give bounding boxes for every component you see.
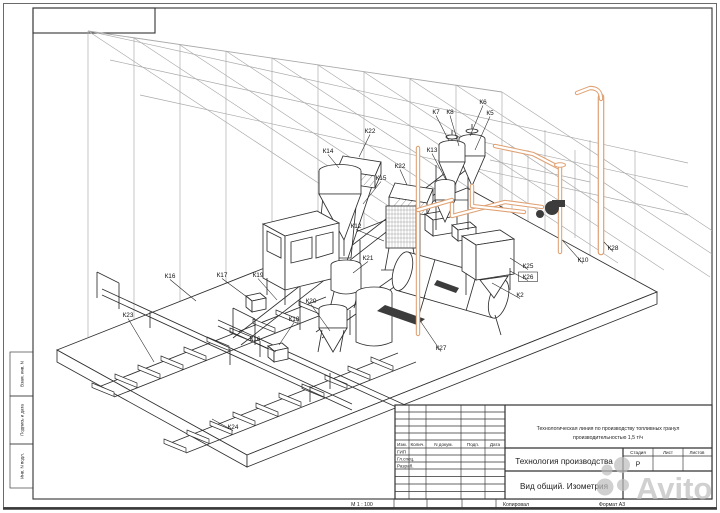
- equipment-label: К18: [289, 316, 300, 323]
- equipment-label: К12: [351, 223, 362, 230]
- role-razrab: Разраб.: [397, 464, 414, 469]
- role-glspec: Гл.спец.: [397, 457, 414, 462]
- label-leader: [359, 135, 370, 158]
- label-leader: [400, 170, 407, 186]
- side-cell-podpis: Подпись и дата: [20, 404, 25, 436]
- avito-logo-dot: [614, 457, 630, 473]
- equipment-label: К17: [217, 272, 228, 279]
- stage-col: Стадия: [630, 450, 646, 455]
- scale-note: М 1 : 100: [351, 502, 373, 508]
- bottom-margin: М 1 : 100 Копировал Формат А3: [351, 499, 625, 508]
- sheet-col: Лист: [663, 450, 674, 455]
- equipment-label: К13: [427, 147, 438, 154]
- project-description-line2: производительностью 1,5 т/ч: [573, 435, 643, 441]
- doc-title: Технология производства: [515, 457, 613, 466]
- drive-box-k17: [246, 293, 266, 312]
- equipment-label: К7: [432, 109, 440, 116]
- equipment-label: К14: [323, 148, 334, 155]
- project-description-line1: Технологическая линия по производству то…: [537, 426, 680, 432]
- drawing-canvas: Взам. инв. N Подпись и дата Инв. N подл.: [0, 0, 720, 513]
- label-leader: [436, 116, 449, 142]
- side-column: Взам. инв. N Подпись и дата Инв. N подл.: [10, 352, 33, 488]
- side-cell-vzam: Взам. инв. N: [20, 361, 25, 387]
- copied-label: Копировал: [503, 502, 529, 508]
- equipment-label: К16: [165, 273, 176, 280]
- equipment-label: К19: [253, 272, 264, 279]
- equipment-label: К21: [363, 255, 374, 262]
- equipment-label: К26: [523, 274, 534, 281]
- equipment-label: К28: [608, 245, 619, 252]
- equipment-label: К20: [306, 298, 317, 305]
- equipment-label: К8: [446, 109, 454, 116]
- top-left-stamp-box: [33, 8, 155, 33]
- avito-logo-dot: [597, 479, 614, 496]
- equipment-label: К23: [123, 312, 134, 319]
- col-data: Дата: [490, 442, 501, 447]
- col-podp: Подп.: [467, 442, 479, 447]
- col-kolich: Колич.: [410, 442, 424, 447]
- side-cell-inv: Инв. N подл.: [20, 453, 25, 479]
- avito-logo-dot: [617, 479, 629, 491]
- view-title: Вид общий. Изометрия: [520, 482, 608, 491]
- equipment-label: К16: [250, 336, 261, 343]
- role-gip: ГИП: [397, 450, 406, 455]
- equipment-label: К10: [578, 257, 589, 264]
- equipment-label: К25: [523, 263, 534, 270]
- equipment-label: К6: [479, 99, 487, 106]
- sheets-col: Листов: [690, 450, 705, 455]
- watermark-text: Avito: [636, 471, 712, 506]
- equipment-label: К2: [516, 292, 524, 299]
- format-label: Формат А3: [599, 502, 625, 508]
- col-izm: Изм.: [397, 442, 407, 447]
- label-leader: [170, 280, 196, 302]
- equipment-label: К24: [228, 424, 239, 431]
- equipment-label: К22: [365, 128, 376, 135]
- col-ndokum: N докум.: [434, 442, 453, 447]
- stage-value: Р: [636, 462, 641, 469]
- equipment-label: К27: [436, 345, 447, 352]
- avito-logo-dot: [602, 465, 613, 476]
- equipment-label: К5: [486, 110, 494, 117]
- drive-box-k18: [268, 343, 288, 362]
- equipment-label: К15: [376, 175, 387, 182]
- drawing-sheet: Взам. инв. N Подпись и дата Инв. N подл.: [0, 0, 720, 513]
- equipment-label: К22: [395, 163, 406, 170]
